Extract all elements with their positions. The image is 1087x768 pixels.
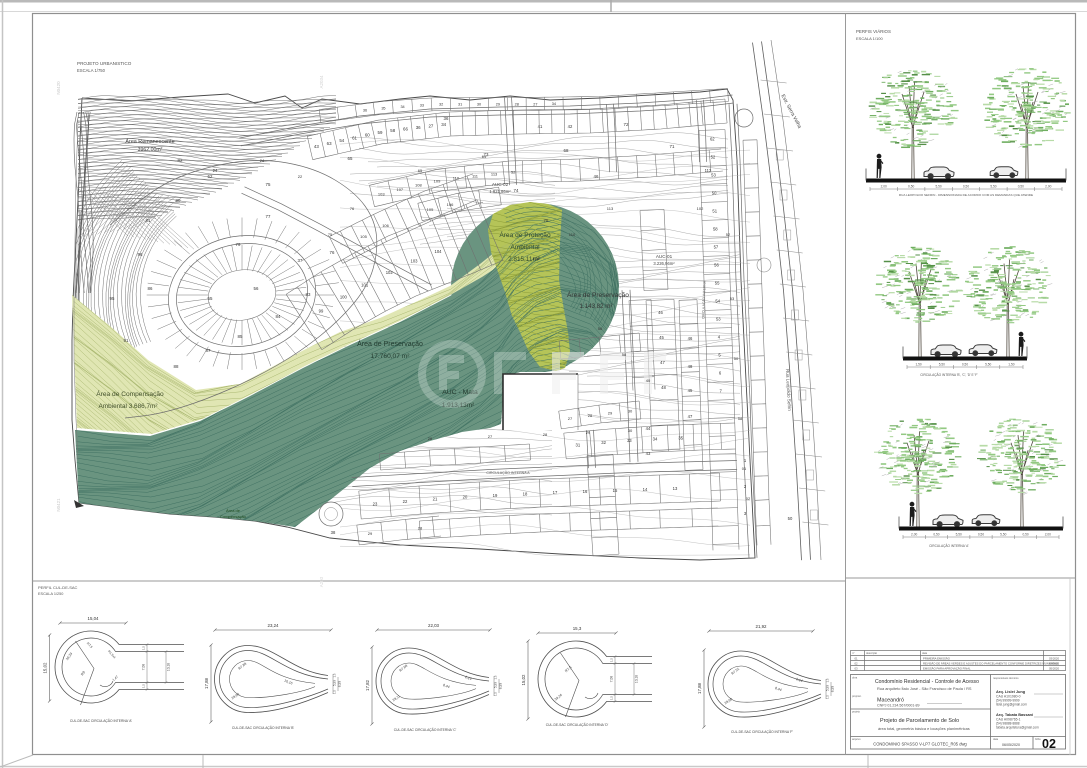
svg-text:7,08: 7,08 xyxy=(142,664,146,671)
svg-text:Arq. Lislei Jung: Arq. Lislei Jung xyxy=(996,689,1026,694)
svg-text:36: 36 xyxy=(444,116,449,121)
svg-text:AUC-01: AUC-01 xyxy=(656,254,673,259)
svg-text:13: 13 xyxy=(673,486,678,491)
svg-text:48: 48 xyxy=(661,385,666,390)
svg-text:PROJETO URBANISTICO: PROJETO URBANISTICO xyxy=(77,61,132,66)
svg-text:28: 28 xyxy=(418,526,423,531)
svg-text:arquivo: arquivo xyxy=(852,737,861,741)
svg-text:71: 71 xyxy=(670,144,675,149)
svg-text:30: 30 xyxy=(628,428,633,433)
svg-text:96: 96 xyxy=(138,252,143,257)
svg-text:28: 28 xyxy=(543,432,548,437)
svg-text:PRIMEIRA EMISSÃO: PRIMEIRA EMISSÃO xyxy=(923,655,951,660)
svg-text:52: 52 xyxy=(726,232,731,237)
svg-text:32: 32 xyxy=(601,440,606,445)
svg-text:43: 43 xyxy=(314,144,319,149)
svg-text:28: 28 xyxy=(515,102,519,106)
svg-text:55: 55 xyxy=(208,296,213,301)
svg-text:2,00: 2,00 xyxy=(911,533,917,537)
svg-text:58: 58 xyxy=(390,128,395,133)
svg-text:EMISSÃO PARA APROVAÇÃO FINAL: EMISSÃO PARA APROVAÇÃO FINAL xyxy=(923,665,971,670)
svg-text:1,5: 1,5 xyxy=(494,675,498,679)
svg-text:66: 66 xyxy=(403,127,408,132)
svg-text:44: 44 xyxy=(646,426,651,431)
svg-text:01: 01 xyxy=(854,656,858,660)
svg-text:17,88: 17,88 xyxy=(697,682,702,694)
svg-text:61: 61 xyxy=(352,135,357,140)
svg-text:Projeto de Parcelamento de Sol: Projeto de Parcelamento de Solo xyxy=(880,718,959,724)
svg-text:3.226,96m²: 3.226,96m² xyxy=(653,261,675,266)
svg-text:15,02: 15,02 xyxy=(521,674,526,686)
svg-text:106: 106 xyxy=(382,223,389,228)
svg-text:Área de Compensação: Área de Compensação xyxy=(96,389,164,398)
svg-text:29: 29 xyxy=(586,430,591,435)
svg-text:48: 48 xyxy=(688,364,693,369)
svg-text:1,5: 1,5 xyxy=(826,695,830,699)
svg-text:REVISÃO DE ÁREAS VERDES E AJUS: REVISÃO DE ÁREAS VERDES E AJUSTES DO PAR… xyxy=(923,660,1059,665)
svg-text:111: 111 xyxy=(472,174,479,179)
svg-text:47: 47 xyxy=(688,414,693,419)
svg-text:17.760,07 m²: 17.760,07 m² xyxy=(371,353,411,360)
svg-text:102: 102 xyxy=(386,270,394,275)
svg-text:1,5: 1,5 xyxy=(142,646,146,650)
svg-text:113: 113 xyxy=(607,206,614,211)
svg-text:29: 29 xyxy=(608,411,613,416)
svg-text:46: 46 xyxy=(658,310,663,315)
svg-text:22: 22 xyxy=(403,499,408,504)
svg-text:0,50: 0,50 xyxy=(963,185,969,189)
svg-text:27: 27 xyxy=(488,434,493,439)
svg-text:109: 109 xyxy=(434,179,441,184)
svg-text:95: 95 xyxy=(110,296,115,301)
svg-text:0,50: 0,50 xyxy=(978,533,984,537)
svg-text:Área de: Área de xyxy=(226,508,241,513)
svg-text:27: 27 xyxy=(428,124,433,129)
svg-text:5,50: 5,50 xyxy=(935,185,941,189)
svg-text:47: 47 xyxy=(660,360,665,365)
svg-text:14: 14 xyxy=(643,487,648,492)
svg-text:107: 107 xyxy=(396,187,403,192)
svg-text:data: data xyxy=(993,737,999,741)
svg-text:ESCALA 1/250: ESCALA 1/250 xyxy=(38,592,63,596)
svg-text:2,00: 2,00 xyxy=(1045,185,1051,189)
svg-text:112: 112 xyxy=(705,168,712,173)
svg-text:30: 30 xyxy=(477,103,481,107)
svg-text:99: 99 xyxy=(319,309,324,314)
svg-text:91: 91 xyxy=(124,338,129,343)
svg-text:30: 30 xyxy=(628,409,633,414)
svg-text:45: 45 xyxy=(659,335,664,340)
svg-text:04/2020: 04/2020 xyxy=(1049,661,1060,665)
svg-text:113: 113 xyxy=(491,171,498,176)
svg-text:obra: obra xyxy=(852,676,858,680)
svg-text:5,50: 5,50 xyxy=(985,363,991,367)
svg-text:01: 01 xyxy=(742,466,747,471)
svg-text:8,99: 8,99 xyxy=(338,681,342,688)
svg-text:52: 52 xyxy=(711,155,716,160)
svg-text:CONDOMINIO SPASSO V-LP7 GLOTEC: CONDOMINIO SPASSO V-LP7 GLOTEC_R05 dwg xyxy=(873,742,967,747)
svg-text:Área de Proteção: Área de Proteção xyxy=(499,230,551,239)
svg-text:80: 80 xyxy=(176,198,181,203)
svg-text:02: 02 xyxy=(1042,737,1056,751)
svg-text:23: 23 xyxy=(373,501,378,506)
svg-text:105: 105 xyxy=(360,234,367,239)
svg-text:17,88: 17,88 xyxy=(204,677,209,689)
svg-text:85: 85 xyxy=(238,334,243,339)
svg-text:74: 74 xyxy=(514,188,519,193)
svg-text:75: 75 xyxy=(266,182,271,187)
svg-text:15,04: 15,04 xyxy=(88,616,100,621)
svg-text:20: 20 xyxy=(463,495,468,500)
svg-text:26: 26 xyxy=(428,436,433,441)
svg-text:65: 65 xyxy=(418,168,423,173)
svg-text:84: 84 xyxy=(276,314,281,319)
svg-text:PERFIL CUL-DE-SAC: PERFIL CUL-DE-SAC xyxy=(38,585,78,590)
svg-text:42: 42 xyxy=(568,124,573,129)
svg-text:104: 104 xyxy=(435,249,443,254)
svg-text:descrição: descrição xyxy=(866,651,878,655)
svg-text:CUL-DE-SAC CIRCULAÇÃO INTERNA: CUL-DE-SAC CIRCULAÇÃO INTERNA 'B' xyxy=(232,725,295,730)
svg-text:CUL-DE-SAC CIRCULAÇÃO INTERNA: CUL-DE-SAC CIRCULAÇÃO INTERNA 'C' xyxy=(394,727,457,732)
svg-text:Ambiental 3.686,7m²: Ambiental 3.686,7m² xyxy=(99,403,158,410)
svg-text:19: 19 xyxy=(493,493,498,498)
svg-text:50: 50 xyxy=(734,356,739,361)
svg-text:21: 21 xyxy=(433,497,438,502)
svg-text:1.143,82 m²: 1.143,82 m² xyxy=(579,303,612,310)
svg-text:Ambiental: Ambiental xyxy=(510,244,540,251)
svg-text:projeto: projeto xyxy=(852,710,860,714)
svg-text:34: 34 xyxy=(552,102,556,106)
svg-text:17,82: 17,82 xyxy=(365,679,370,691)
svg-text:1,5: 1,5 xyxy=(826,678,830,682)
svg-text:110: 110 xyxy=(569,232,576,237)
svg-text:0,50: 0,50 xyxy=(1018,185,1024,189)
svg-text:76: 76 xyxy=(330,250,335,255)
svg-text:5,99: 5,99 xyxy=(333,680,337,686)
svg-text:7,08: 7,08 xyxy=(610,676,614,683)
svg-text:5,50: 5,50 xyxy=(939,363,945,367)
svg-text:45: 45 xyxy=(688,388,693,393)
svg-text:79: 79 xyxy=(236,242,241,247)
svg-text:62: 62 xyxy=(208,174,213,179)
svg-text:1,50: 1,50 xyxy=(915,363,921,367)
svg-text:88: 88 xyxy=(174,364,179,369)
svg-text:52: 52 xyxy=(511,170,516,175)
svg-text:1,5: 1,5 xyxy=(333,690,337,694)
svg-text:41: 41 xyxy=(538,124,543,129)
svg-text:0,50: 0,50 xyxy=(962,363,968,367)
svg-text:53: 53 xyxy=(716,317,721,322)
svg-text:86: 86 xyxy=(148,286,153,291)
svg-text:53: 53 xyxy=(711,173,716,178)
svg-text:ESCALA 1/750: ESCALA 1/750 xyxy=(77,68,106,73)
svg-text:0,50: 0,50 xyxy=(1022,533,1028,537)
svg-text:87: 87 xyxy=(206,348,211,353)
svg-text:59: 59 xyxy=(378,130,383,135)
svg-text:54: 54 xyxy=(339,138,344,143)
svg-text:60: 60 xyxy=(365,132,370,137)
svg-text:58: 58 xyxy=(622,352,627,357)
svg-text:21,92: 21,92 xyxy=(756,624,768,629)
svg-text:56: 56 xyxy=(714,263,719,268)
svg-text:03: 03 xyxy=(854,666,858,670)
svg-text:5,99: 5,99 xyxy=(494,682,498,688)
svg-text:2,00: 2,00 xyxy=(1045,533,1051,537)
svg-text:área total, geometria básica e: área total, geometria básica e locações … xyxy=(878,726,970,731)
svg-text:Área Remanescente: Área Remanescente xyxy=(125,138,174,145)
svg-text:15,02: 15,02 xyxy=(42,662,47,674)
svg-text:50: 50 xyxy=(712,191,717,196)
svg-text:data: data xyxy=(922,651,928,655)
svg-text:38: 38 xyxy=(331,530,336,535)
svg-text:102: 102 xyxy=(697,206,704,211)
svg-text:43: 43 xyxy=(646,451,651,456)
svg-text:05/2020: 05/2020 xyxy=(1049,666,1060,670)
svg-text:56: 56 xyxy=(254,286,259,291)
svg-text:81: 81 xyxy=(146,218,151,223)
svg-text:responsáveis técnicos: responsáveis técnicos xyxy=(993,676,1019,680)
svg-text:36: 36 xyxy=(363,109,367,113)
svg-text:46: 46 xyxy=(594,174,599,179)
svg-text:CNPJ 01.234.567/0001-89: CNPJ 01.234.567/0001-89 xyxy=(877,704,920,708)
svg-text:24: 24 xyxy=(213,168,218,173)
svg-text:64: 64 xyxy=(482,154,487,159)
svg-text:1,50: 1,50 xyxy=(1008,363,1014,367)
svg-text:10,18: 10,18 xyxy=(167,663,171,671)
svg-text:65: 65 xyxy=(348,156,353,161)
svg-text:3962,00m²: 3962,00m² xyxy=(138,147,163,153)
svg-text:8,99: 8,99 xyxy=(499,683,503,690)
svg-text:34: 34 xyxy=(441,122,446,127)
svg-text:CUL-DE-SAC CIRCULAÇÃO INTERNA: CUL-DE-SAC CIRCULAÇÃO INTERNA 'F' xyxy=(731,729,793,734)
svg-text:27: 27 xyxy=(568,416,573,421)
svg-text:58: 58 xyxy=(738,416,743,421)
svg-text:03/2020: 03/2020 xyxy=(1049,656,1060,660)
svg-text:5,99: 5,99 xyxy=(826,685,830,691)
svg-text:CUL-DE-SAC CIRCULAÇÃO INTERNA: CUL-DE-SAC CIRCULAÇÃO INTERNA 'A' xyxy=(70,718,133,723)
svg-text:propriet.: propriet. xyxy=(852,694,862,698)
svg-text:31: 31 xyxy=(576,442,581,447)
svg-text:57: 57 xyxy=(714,245,719,250)
svg-text:Condomínio Residencial - Contr: Condomínio Residencial - Controle de Ace… xyxy=(875,679,979,685)
svg-text:22: 22 xyxy=(298,174,303,179)
svg-text:51: 51 xyxy=(712,209,717,214)
svg-text:18: 18 xyxy=(523,491,528,496)
svg-text:CIRCULAÇÃO INTERNA A: CIRCULAÇÃO INTERNA A xyxy=(486,470,530,475)
svg-text:27: 27 xyxy=(533,102,537,106)
svg-text:PERFIS VIÁRIOS: PERFIS VIÁRIOS xyxy=(856,29,891,34)
svg-text:23,24: 23,24 xyxy=(268,623,280,628)
svg-text:0,50: 0,50 xyxy=(933,533,939,537)
svg-text:72: 72 xyxy=(624,122,629,127)
svg-text:103: 103 xyxy=(378,191,385,196)
svg-text:34: 34 xyxy=(400,105,404,109)
svg-text:Área de Preservação: Área de Preservação xyxy=(567,290,629,299)
svg-text:A2034: A2034 xyxy=(319,75,324,89)
svg-text:105: 105 xyxy=(427,207,434,212)
svg-text:31: 31 xyxy=(458,103,462,107)
svg-text:10,18: 10,18 xyxy=(635,675,639,683)
svg-text:55: 55 xyxy=(715,281,720,286)
svg-text:40: 40 xyxy=(646,378,651,383)
svg-text:folha: folha xyxy=(1035,737,1041,741)
svg-text:Rua arquiteto Ítalo José - São: Rua arquiteto Ítalo José - São Francisco… xyxy=(877,686,972,691)
svg-text:1,5: 1,5 xyxy=(610,696,614,700)
svg-text:N0420: N0420 xyxy=(56,81,61,95)
svg-text:100: 100 xyxy=(340,295,348,300)
svg-text:RUA LEOPOLDO SEFRIN - DIMENSIO: RUA LEOPOLDO SEFRIN - DIMENSIONADA DE AC… xyxy=(899,193,1033,197)
svg-text:ESCALA 1/100: ESCALA 1/100 xyxy=(856,36,883,41)
svg-text:24: 24 xyxy=(260,158,265,163)
svg-text:1,5: 1,5 xyxy=(333,673,337,677)
svg-text:76: 76 xyxy=(350,206,355,211)
svg-text:06/05/2020: 06/05/2020 xyxy=(1002,743,1020,747)
svg-text:lislei.jung@gmail.com: lislei.jung@gmail.com xyxy=(996,703,1027,707)
svg-text:35: 35 xyxy=(381,106,385,110)
svg-text:46: 46 xyxy=(688,336,693,341)
svg-text:28: 28 xyxy=(588,413,593,418)
svg-text:83: 83 xyxy=(306,292,311,297)
svg-text:103: 103 xyxy=(411,259,419,264)
svg-text:108: 108 xyxy=(533,256,540,261)
svg-text:53: 53 xyxy=(730,296,735,301)
svg-text:1.821,86m²: 1.821,86m² xyxy=(489,189,511,194)
svg-text:68: 68 xyxy=(564,148,569,153)
svg-text:5,50: 5,50 xyxy=(1000,533,1006,537)
svg-text:29: 29 xyxy=(496,103,500,107)
svg-text:36: 36 xyxy=(416,125,421,130)
svg-text:63: 63 xyxy=(327,141,332,146)
svg-text:Área de Preservação: Área de Preservação xyxy=(357,339,423,348)
svg-text:5,50: 5,50 xyxy=(956,533,962,537)
svg-text:1,5: 1,5 xyxy=(142,684,146,688)
svg-text:77: 77 xyxy=(266,214,271,219)
svg-text:108: 108 xyxy=(415,183,422,188)
svg-text:33: 33 xyxy=(420,104,424,108)
svg-text:75: 75 xyxy=(544,218,549,223)
svg-text:02: 02 xyxy=(746,496,751,501)
svg-text:n°: n° xyxy=(852,651,854,655)
svg-text:50: 50 xyxy=(788,516,793,521)
svg-text:CIRCULAÇÃO INTERNA 'B', 'C', ': CIRCULAÇÃO INTERNA 'B', 'C', 'D' E 'F' xyxy=(920,372,978,377)
svg-text:0,50: 0,50 xyxy=(908,185,914,189)
svg-text:16: 16 xyxy=(583,489,588,494)
svg-text:tabata.arquitetura@gmail.com: tabata.arquitetura@gmail.com xyxy=(996,726,1039,730)
svg-text:2,00: 2,00 xyxy=(881,185,887,189)
svg-text:8,99: 8,99 xyxy=(831,686,835,693)
svg-text:Arq. Tabata Bassani: Arq. Tabata Bassani xyxy=(996,712,1033,717)
svg-text:54: 54 xyxy=(715,299,720,304)
svg-text:106: 106 xyxy=(447,202,454,207)
svg-text:AUC-02: AUC-02 xyxy=(492,182,509,187)
svg-text:82: 82 xyxy=(178,158,183,163)
svg-text:29: 29 xyxy=(368,531,373,536)
svg-text:CUL-DE-SAC CIRCULAÇÃO INTERNA: CUL-DE-SAC CIRCULAÇÃO INTERNA 'D' xyxy=(546,722,609,727)
svg-text:37: 37 xyxy=(298,258,303,263)
svg-text:Compensação: Compensação xyxy=(220,514,247,519)
svg-text:75: 75 xyxy=(328,232,333,237)
svg-text:58: 58 xyxy=(713,227,718,232)
svg-text:35: 35 xyxy=(678,435,683,440)
svg-text:N0421: N0421 xyxy=(56,498,61,512)
svg-text:33: 33 xyxy=(627,438,632,443)
svg-text:62: 62 xyxy=(710,137,715,142)
svg-text:A203: A203 xyxy=(319,576,324,587)
svg-text:CIRCULAÇÃO INTERNA 'A': CIRCULAÇÃO INTERNA 'A' xyxy=(929,543,969,548)
svg-text:1,5: 1,5 xyxy=(494,692,498,696)
svg-text:34: 34 xyxy=(653,437,658,442)
svg-text:17: 17 xyxy=(553,490,558,495)
svg-text:02: 02 xyxy=(854,661,858,665)
svg-text:32: 32 xyxy=(439,103,443,107)
svg-text:5,50: 5,50 xyxy=(990,185,996,189)
svg-text:56: 56 xyxy=(598,326,603,331)
svg-text:15,3: 15,3 xyxy=(573,626,582,631)
svg-text:22,03: 22,03 xyxy=(428,623,440,628)
svg-text:1,5: 1,5 xyxy=(610,658,614,662)
